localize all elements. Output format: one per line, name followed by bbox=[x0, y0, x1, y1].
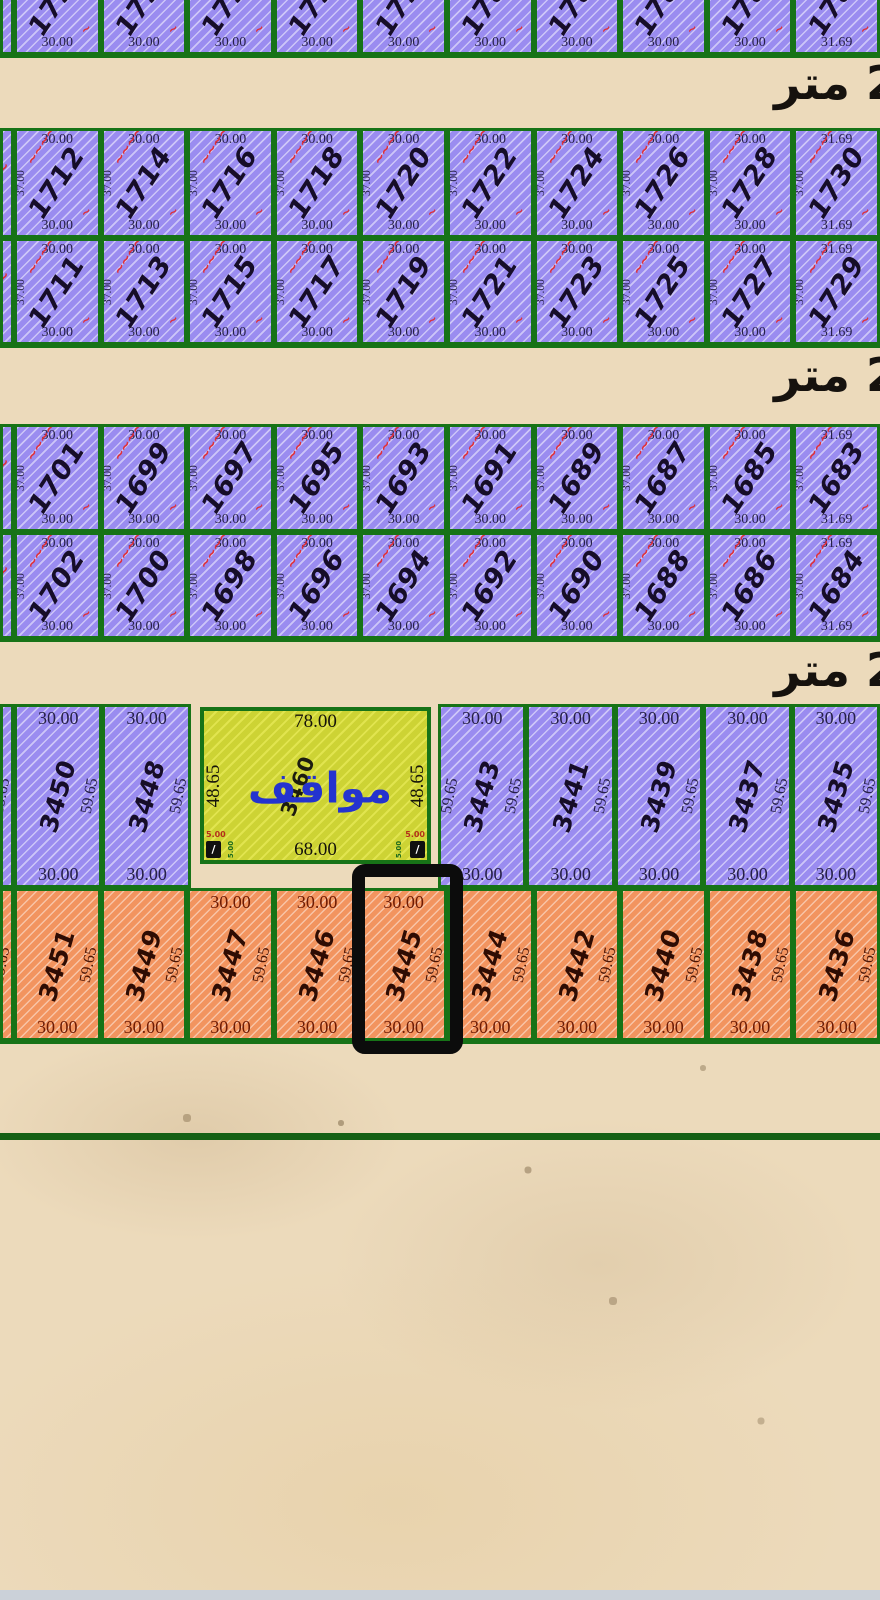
dimension-label: 37.00 bbox=[189, 170, 201, 196]
dimension-label: 37.00 bbox=[449, 573, 461, 599]
dimension-label: 30.00 bbox=[618, 709, 700, 727]
plot-1702[interactable]: 30.0030.0037.001702~~~~~ bbox=[14, 532, 101, 642]
dimension-label: 59.65 bbox=[77, 945, 100, 983]
dimension-label: 37.00 bbox=[103, 279, 115, 305]
handwriting-mark: ~ bbox=[0, 564, 13, 581]
dimension-label: 30.00 bbox=[17, 219, 98, 233]
dimension-label: 37.00 bbox=[276, 279, 288, 305]
dimension-label: 59.65 bbox=[510, 945, 533, 983]
dimension-label: 30.00 bbox=[537, 1018, 618, 1036]
dimension-label: 37.00 bbox=[449, 170, 461, 196]
plot-1697[interactable]: 30.0030.0037.001697~~~~~ bbox=[187, 424, 274, 532]
dimension-label: 37.00 bbox=[363, 170, 375, 196]
handwriting-mark: ~ bbox=[252, 205, 267, 221]
dimension-label: 30.00 bbox=[277, 1018, 358, 1036]
plot-1718[interactable]: 30.0030.0037.001718~~~~~ bbox=[274, 128, 361, 238]
dimension-label: 37.00 bbox=[536, 573, 548, 599]
plot-1792[interactable]: 30.001792~~~~~ bbox=[274, 0, 361, 58]
plot-1784[interactable]: 30.001784~~~~~ bbox=[620, 0, 707, 58]
dimension-label: 31.69 bbox=[796, 219, 877, 233]
plot-1701[interactable]: 30.0030.0037.001701~~~~~ bbox=[14, 424, 101, 532]
dimension-label: 30.00 bbox=[363, 36, 444, 50]
dimension-label: 59.65 bbox=[250, 945, 273, 983]
dimension-label: 30.00 bbox=[710, 36, 791, 50]
plot-1687[interactable]: 30.0030.0037.001687~~~~~ bbox=[620, 424, 707, 532]
plot-3439[interactable]: 30.0030.0059.653439 bbox=[615, 704, 703, 888]
dimension-label: 30.00 bbox=[105, 865, 187, 883]
dimension-label: 30.00 bbox=[796, 1018, 877, 1036]
dimension-label: 48.65 bbox=[408, 764, 427, 807]
dimension-label: 59.65 bbox=[857, 945, 880, 983]
dimension-label: 37.00 bbox=[449, 279, 461, 305]
street-width-label: 2 متر bbox=[774, 645, 880, 696]
plot-1714[interactable]: 30.0030.0037.001714~~~~~ bbox=[101, 128, 188, 238]
plot-number: 3442 bbox=[553, 924, 600, 1006]
dimension-label: 30.00 bbox=[17, 36, 98, 50]
plot-3447[interactable]: 30.0030.0059.653447 bbox=[187, 888, 274, 1044]
dimension-label: 59.65 bbox=[503, 777, 526, 815]
dimension-label: 30.00 bbox=[277, 893, 358, 911]
plot-1695[interactable]: 30.0030.0037.001695~~~~~ bbox=[274, 424, 361, 532]
handwriting-mark: ~ bbox=[79, 22, 94, 38]
plot-1796[interactable]: 30.001796~~~~~ bbox=[101, 0, 188, 58]
dimension-label: 30.00 bbox=[795, 709, 877, 727]
plot-3436[interactable]: 30.0059.653436 bbox=[793, 888, 880, 1044]
plot-number: 3448 bbox=[123, 755, 170, 837]
plot-partial-left: 59.65 bbox=[0, 704, 14, 888]
handwriting-mark: ~ bbox=[598, 22, 613, 38]
plot-1715[interactable]: 30.0030.0037.001715~~~~~ bbox=[187, 238, 274, 348]
plot-number: 3451 bbox=[34, 924, 81, 1006]
dimension-label: 30.00 bbox=[105, 709, 187, 727]
dimension-label: 37.00 bbox=[276, 573, 288, 599]
handwriting-mark: ~ bbox=[338, 22, 353, 38]
dimension-label: 30.00 bbox=[529, 709, 611, 727]
plot-1688[interactable]: 30.0030.0037.001688~~~~~ bbox=[620, 532, 707, 642]
plot-1786[interactable]: 30.001786~~~~~ bbox=[534, 0, 621, 58]
dimension-label: 30.00 bbox=[706, 709, 788, 727]
dimension-label: 37.00 bbox=[622, 279, 634, 305]
handwriting-mark: ~ bbox=[771, 22, 786, 38]
row-1702-1684: ~30.0030.0037.001702~~~~~30.0030.0037.00… bbox=[0, 532, 880, 642]
dimension-label: 37.00 bbox=[449, 465, 461, 491]
dimension-label: 37.00 bbox=[103, 573, 115, 599]
dimension-label: 37.00 bbox=[622, 573, 634, 599]
dimension-label: 37.00 bbox=[622, 465, 634, 491]
dimension-label: 30.00 bbox=[450, 219, 531, 233]
bottom-edge-strip bbox=[0, 1590, 880, 1600]
dimension-label: 37.00 bbox=[276, 170, 288, 196]
plot-1722[interactable]: 30.0030.0037.001722~~~~~ bbox=[447, 128, 534, 238]
dimension-label: 31.69 bbox=[796, 36, 877, 50]
handwriting-mark: ~ bbox=[858, 22, 873, 38]
plot-3441[interactable]: 30.0030.0059.653441 bbox=[526, 704, 614, 888]
plot-1730[interactable]: 31.6931.6937.001730~~~~~ bbox=[793, 128, 880, 238]
row-3450-3435: 59.6530.0030.0059.65345030.0030.0059.653… bbox=[0, 704, 880, 888]
plot-3438[interactable]: 30.0059.653438 bbox=[707, 888, 794, 1044]
dimension-label: 59.65 bbox=[168, 777, 191, 815]
plot-number: 3450 bbox=[35, 755, 82, 837]
dimension-label: 30.00 bbox=[710, 1018, 791, 1036]
dimension-label: 30.00 bbox=[277, 219, 358, 233]
handwriting-mark: ~ bbox=[685, 22, 700, 38]
plot-1720[interactable]: 30.0030.0037.001720~~~~~ bbox=[360, 128, 447, 238]
dimension-label: 37.00 bbox=[536, 465, 548, 491]
handwriting-mark: ~ bbox=[425, 22, 440, 38]
plot-partial-left: ~ bbox=[0, 532, 14, 642]
dimension-label: 37.00 bbox=[796, 170, 808, 196]
handwriting-mark: ~ bbox=[0, 456, 13, 473]
plot-number: 3436 bbox=[813, 924, 860, 1006]
dimension-label: 59.65 bbox=[597, 945, 620, 983]
plot-3440[interactable]: 30.0059.653440 bbox=[620, 888, 707, 1044]
plot-number: 3439 bbox=[635, 755, 682, 837]
dimension-label: 30.00 bbox=[710, 219, 791, 233]
plot-1691[interactable]: 30.0030.0037.001691~~~~~ bbox=[447, 424, 534, 532]
plot-3446[interactable]: 30.0030.0059.653446 bbox=[274, 888, 361, 1044]
plot-number: 3449 bbox=[120, 924, 167, 1006]
dimension-label: 37.00 bbox=[622, 170, 634, 196]
plot-1798[interactable]: 30.001798~~~~~ bbox=[14, 0, 101, 58]
dimension-label: 30.00 bbox=[441, 709, 523, 727]
plot-3449[interactable]: 30.0059.653449 bbox=[101, 888, 188, 1044]
dimension-label: 37.00 bbox=[536, 170, 548, 196]
handwriting-mark: ~ bbox=[0, 161, 13, 178]
plot-1727[interactable]: 30.0030.0037.001727~~~~~ bbox=[707, 238, 794, 348]
dimension-label: 37.00 bbox=[796, 573, 808, 599]
plot-3448[interactable]: 30.0030.0059.653448 bbox=[102, 704, 190, 888]
handwriting-mark: ~ bbox=[771, 205, 786, 221]
dimension-label: 37.00 bbox=[709, 170, 721, 196]
dimension-label: 37.00 bbox=[363, 465, 375, 491]
dimension-label: 37.00 bbox=[103, 465, 115, 491]
plot-3435[interactable]: 30.0030.0059.653435 bbox=[792, 704, 880, 888]
dimension-label: 59.65 bbox=[857, 777, 880, 815]
dimension-label: 30.00 bbox=[623, 36, 704, 50]
dimension-label: 59.65 bbox=[0, 945, 13, 983]
plot-1723[interactable]: 30.0030.0037.001723~~~~~ bbox=[534, 238, 621, 348]
plot-1721[interactable]: 30.0030.0037.001721~~~~~ bbox=[447, 238, 534, 348]
plot-3437[interactable]: 30.0030.0059.653437 bbox=[703, 704, 791, 888]
plot-1696[interactable]: 30.0030.0037.001696~~~~~ bbox=[274, 532, 361, 642]
dimension-label: 30.00 bbox=[17, 709, 99, 727]
street-boundary-line bbox=[0, 1133, 880, 1140]
plot-1724[interactable]: 30.0030.0037.001724~~~~~ bbox=[534, 128, 621, 238]
handwriting-mark: ~ bbox=[598, 205, 613, 221]
dimension-label: 30.00 bbox=[363, 219, 444, 233]
plot-1690[interactable]: 30.0030.0037.001690~~~~~ bbox=[534, 532, 621, 642]
plot-number: 3444 bbox=[467, 924, 514, 1006]
handwriting-mark: ~ bbox=[79, 205, 94, 221]
plot-number: 3447 bbox=[207, 924, 254, 1006]
dimension-label: 30.00 bbox=[190, 219, 271, 233]
plot-3460-parking[interactable]: 78.00 68.00 48.65 48.65 3460 مواقف / / 5… bbox=[200, 707, 431, 864]
plot-1712[interactable]: 30.0030.0037.001712~~~~~ bbox=[14, 128, 101, 238]
handwriting-mark: ~ bbox=[425, 205, 440, 221]
handwriting-mark: ~ bbox=[0, 270, 13, 287]
handwriting-mark: ~ bbox=[338, 205, 353, 221]
dimension-label: 30.00 bbox=[104, 219, 185, 233]
plot-1698[interactable]: 30.0030.0037.001698~~~~~ bbox=[187, 532, 274, 642]
dimension-label: 30.00 bbox=[529, 865, 611, 883]
dimension-label: 59.65 bbox=[680, 777, 703, 815]
plot-partial-left: 59.65 bbox=[0, 888, 14, 1044]
plot-number: 3441 bbox=[547, 755, 594, 837]
plot-partial-left: ~ bbox=[0, 238, 14, 348]
row-1711-1729: ~30.0030.0037.001711~~~~~30.0030.0037.00… bbox=[0, 238, 880, 348]
plot-1689[interactable]: 30.0030.0037.001689~~~~~ bbox=[534, 424, 621, 532]
dimension-label: 30.00 bbox=[795, 865, 877, 883]
row-1712-1730: ~30.0030.0037.001712~~~~~30.0030.0037.00… bbox=[0, 128, 880, 238]
dimension-label: 30.00 bbox=[623, 219, 704, 233]
selected-plot-outline bbox=[352, 864, 463, 1054]
dimension-label: 30.00 bbox=[706, 865, 788, 883]
handwriting-mark: ~ bbox=[165, 22, 180, 38]
dimension-label: 59.65 bbox=[770, 945, 793, 983]
plot-1685[interactable]: 30.0030.0037.001685~~~~~ bbox=[707, 424, 794, 532]
plot-1726[interactable]: 30.0030.0037.001726~~~~~ bbox=[620, 128, 707, 238]
parking-label: مواقف bbox=[248, 764, 392, 813]
plot-1716[interactable]: 30.0030.0037.001716~~~~~ bbox=[187, 128, 274, 238]
chamfer-corner-icon: / bbox=[410, 841, 425, 858]
dimension-label: 37.00 bbox=[16, 573, 28, 599]
dimension-label: 37.00 bbox=[796, 279, 808, 305]
dimension-label: 37.00 bbox=[363, 279, 375, 305]
dimension-label: 30.00 bbox=[17, 865, 99, 883]
dimension-label: 59.65 bbox=[439, 777, 462, 815]
plot-1794[interactable]: 30.001794~~~~~ bbox=[187, 0, 274, 58]
handwriting-mark: ~ bbox=[512, 22, 527, 38]
dimension-label: 37.00 bbox=[189, 279, 201, 305]
plot-number: 3437 bbox=[724, 755, 771, 837]
dimension-label: 59.65 bbox=[683, 945, 706, 983]
plot-1729[interactable]: 31.6931.6937.001729~~~~~ bbox=[793, 238, 880, 348]
plot-1700[interactable]: 30.0030.0037.001700~~~~~ bbox=[101, 532, 188, 642]
plot-1683[interactable]: 31.6931.6937.001683~~~~~ bbox=[793, 424, 880, 532]
handwriting-mark: ~ bbox=[858, 205, 873, 221]
plot-1693[interactable]: 30.0030.0037.001693~~~~~ bbox=[360, 424, 447, 532]
plot-3443[interactable]: 30.0030.0059.6559.653443 bbox=[438, 704, 526, 888]
plot-1788[interactable]: 30.001788~~~~~ bbox=[447, 0, 534, 58]
dimension-label: 37.00 bbox=[796, 465, 808, 491]
dimension-label: 30.00 bbox=[618, 865, 700, 883]
dimension-label: 37.00 bbox=[189, 573, 201, 599]
dimension-label: 37.00 bbox=[16, 465, 28, 491]
handwriting-mark: ~ bbox=[512, 205, 527, 221]
dimension-label: 30.00 bbox=[450, 36, 531, 50]
dimension-label: 59.65 bbox=[0, 777, 13, 815]
cadastral-map: 2 متر 2 متر 2 متر ~30.001798~~~~~30.0017… bbox=[0, 0, 880, 1600]
plot-1692[interactable]: 30.0030.0037.001692~~~~~ bbox=[447, 532, 534, 642]
dimension-label: 37.00 bbox=[276, 465, 288, 491]
plot-1686[interactable]: 30.0030.0037.001686~~~~~ bbox=[707, 532, 794, 642]
dimension-label: 59.65 bbox=[164, 945, 187, 983]
plot-1711[interactable]: 30.0030.0037.001711~~~~~ bbox=[14, 238, 101, 348]
chamfer-dim-label: 5.00 bbox=[228, 841, 235, 858]
plot-number: 3438 bbox=[726, 924, 773, 1006]
dimension-label: 37.00 bbox=[363, 573, 375, 599]
dimension-label: 30.00 bbox=[537, 219, 618, 233]
plot-3451[interactable]: 30.0059.653451 bbox=[14, 888, 101, 1044]
dimension-label: 30.00 bbox=[277, 36, 358, 50]
plot-number: 3440 bbox=[640, 924, 687, 1006]
plot-1699[interactable]: 30.0030.0037.001699~~~~~ bbox=[101, 424, 188, 532]
row-1790s-partial: ~30.001798~~~~~30.001796~~~~~30.001794~~… bbox=[0, 0, 880, 58]
dimension-label: 37.00 bbox=[16, 279, 28, 305]
dimension-label: 59.65 bbox=[79, 777, 102, 815]
handwriting-mark: ~ bbox=[685, 205, 700, 221]
plot-1717[interactable]: 30.0030.0037.001717~~~~~ bbox=[274, 238, 361, 348]
sand-speckles bbox=[0, 0, 2, 2]
plot-1728[interactable]: 30.0030.0037.001728~~~~~ bbox=[707, 128, 794, 238]
plot-1719[interactable]: 30.0030.0037.001719~~~~~ bbox=[360, 238, 447, 348]
dimension-label: 37.00 bbox=[536, 279, 548, 305]
dimension-label: 30.00 bbox=[104, 1018, 185, 1036]
dimension-label: 48.65 bbox=[204, 764, 223, 807]
dimension-label: 30.00 bbox=[623, 1018, 704, 1036]
plot-partial-left: ~ bbox=[0, 0, 14, 58]
row-1701-1683: ~30.0030.0037.001701~~~~~30.0030.0037.00… bbox=[0, 424, 880, 532]
dimension-label: 30.00 bbox=[190, 1018, 271, 1036]
plot-1790[interactable]: 30.001790~~~~~ bbox=[360, 0, 447, 58]
plot-3442[interactable]: 30.0059.653442 bbox=[534, 888, 621, 1044]
dimension-label: 30.00 bbox=[190, 36, 271, 50]
handwriting-mark: ~ bbox=[165, 205, 180, 221]
plot-number: 3446 bbox=[293, 924, 340, 1006]
plot-3450[interactable]: 30.0030.0059.653450 bbox=[14, 704, 102, 888]
dimension-label: 59.65 bbox=[768, 777, 791, 815]
dimension-label: 30.00 bbox=[104, 36, 185, 50]
dimension-label: 30.00 bbox=[17, 1018, 98, 1036]
chamfer-dim-label: 5.00 bbox=[405, 831, 425, 839]
dimension-label: 37.00 bbox=[709, 573, 721, 599]
street-width-label: 2 متر bbox=[774, 58, 880, 109]
plot-1684[interactable]: 31.6931.6937.001684~~~~~ bbox=[793, 532, 880, 642]
plot-partial-left: ~ bbox=[0, 424, 14, 532]
plot-1780[interactable]: 31.691780~~~~~ bbox=[793, 0, 880, 58]
dimension-label: 78.00 bbox=[204, 712, 427, 731]
chamfer-dim-label: 5.00 bbox=[396, 841, 403, 858]
dimension-label: 68.00 bbox=[204, 840, 427, 859]
plot-1713[interactable]: 30.0030.0037.001713~~~~~ bbox=[101, 238, 188, 348]
handwriting-mark: ~ bbox=[252, 22, 267, 38]
dimension-label: 37.00 bbox=[103, 170, 115, 196]
chamfer-dim-label: 5.00 bbox=[206, 831, 226, 839]
plot-1725[interactable]: 30.0030.0037.001725~~~~~ bbox=[620, 238, 707, 348]
dimension-label: 37.00 bbox=[16, 170, 28, 196]
plot-number: 3435 bbox=[812, 755, 859, 837]
chamfer-corner-icon: / bbox=[206, 841, 221, 858]
dimension-label: 37.00 bbox=[189, 465, 201, 491]
plot-1694[interactable]: 30.0030.0037.001694~~~~~ bbox=[360, 532, 447, 642]
dimension-label: 37.00 bbox=[709, 465, 721, 491]
dimension-label: 37.00 bbox=[709, 279, 721, 305]
plot-partial-left: ~ bbox=[0, 128, 14, 238]
dimension-label: 30.00 bbox=[537, 36, 618, 50]
plot-number: 3443 bbox=[459, 755, 506, 837]
dimension-label: 59.65 bbox=[592, 777, 615, 815]
dimension-label: 30.00 bbox=[190, 893, 271, 911]
street-width-label: 2 متر bbox=[774, 350, 880, 401]
plot-1782[interactable]: 30.001782~~~~~ bbox=[707, 0, 794, 58]
